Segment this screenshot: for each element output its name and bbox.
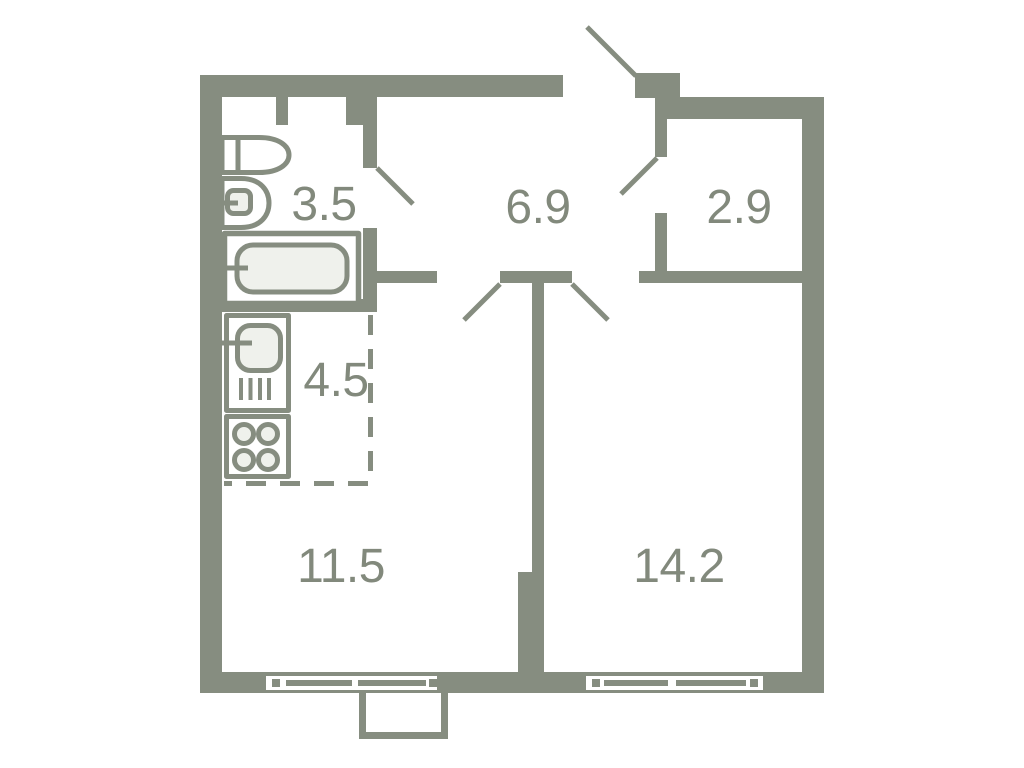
- window-stop: [592, 679, 600, 687]
- stove-icon: [227, 417, 289, 477]
- wall-exterior-right: [802, 97, 824, 693]
- wall-exterior-top-right: [657, 97, 824, 119]
- bathtub-basin: [237, 245, 347, 292]
- wall-storage-bottom: [639, 271, 802, 283]
- storage-door-swing: [621, 158, 657, 194]
- wall-exterior-top-left: [200, 75, 563, 97]
- toilet-bowl: [238, 138, 289, 173]
- bathtub-icon: [214, 234, 359, 304]
- window-glazing-bar: [604, 680, 668, 686]
- stove-burner: [235, 425, 254, 444]
- stove-burner: [259, 451, 278, 470]
- window-glazing-bar: [286, 680, 352, 686]
- floor-plan: 3.5 6.9 2.9 4.5 11.5 14.2: [0, 0, 1024, 768]
- room-label-kitchen: 4.5: [303, 354, 368, 407]
- entrance-door-swing: [587, 27, 636, 76]
- bedroom-door-swing: [572, 284, 608, 320]
- stove-burner: [235, 451, 254, 470]
- wall-storage-left-upper: [655, 97, 667, 157]
- stove-burner: [259, 425, 278, 444]
- wall-center-vertical: [532, 283, 544, 572]
- living-room-door-swing: [464, 284, 500, 320]
- walls: [200, 73, 824, 693]
- sink-bowl: [238, 326, 281, 371]
- toilet-icon: [222, 138, 289, 173]
- window-glazing-bar: [358, 680, 426, 686]
- wall-center-t-cap: [500, 271, 572, 283]
- room-label-bathroom: 3.5: [291, 178, 356, 231]
- wall-storage-left-lower: [655, 213, 667, 273]
- floor-plan-page: 3.5 6.9 2.9 4.5 11.5 14.2: [0, 0, 1024, 768]
- window-stop: [272, 679, 280, 687]
- entrance-jamb-block: [635, 73, 680, 98]
- room-label-bedroom: 14.2: [633, 540, 724, 593]
- bathroom-door-swing: [377, 168, 413, 204]
- wall-center-vertical-wide: [518, 572, 544, 672]
- room-label-living-room: 11.5: [297, 540, 385, 593]
- kitchen-sink-icon: [214, 316, 289, 411]
- room-label-storage: 2.9: [706, 181, 771, 234]
- window-stop: [750, 679, 758, 687]
- room-label-hallway: 6.9: [505, 181, 570, 234]
- window-stop: [429, 679, 437, 687]
- window-bedroom: [586, 676, 763, 690]
- window-glazing-bar: [676, 680, 746, 686]
- vent-shaft-divider-2: [346, 97, 363, 125]
- wall-exterior-left: [200, 75, 222, 693]
- wall-bathroom-right-upper: [363, 97, 377, 168]
- balcony-outline: [363, 693, 445, 736]
- window-living-room: [266, 676, 437, 690]
- vent-shaft-divider-1: [276, 97, 288, 125]
- wall-hallway-bottom-stub: [377, 271, 437, 283]
- washbasin-icon: [214, 179, 269, 228]
